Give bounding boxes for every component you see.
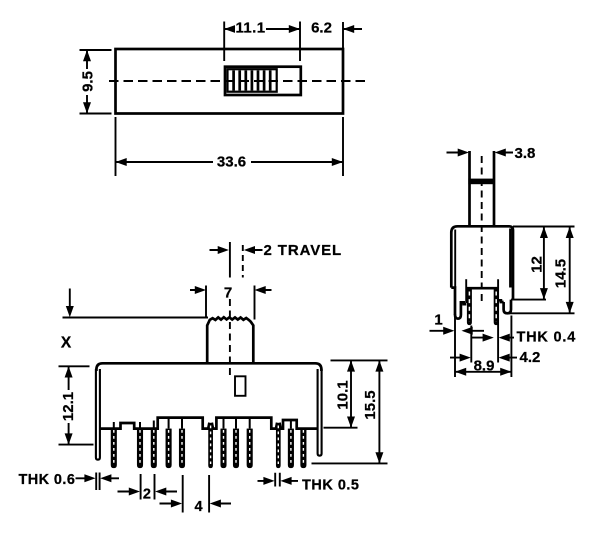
svg-text:2: 2: [143, 487, 151, 503]
svg-text:4: 4: [194, 499, 202, 515]
svg-text:4.2: 4.2: [520, 349, 541, 366]
svg-text:12.1: 12.1: [60, 392, 77, 421]
svg-text:2 TRAVEL: 2 TRAVEL: [264, 242, 343, 259]
svg-text:X: X: [61, 335, 72, 352]
svg-text:33.6: 33.6: [217, 154, 246, 171]
svg-text:9.5: 9.5: [80, 71, 97, 92]
svg-text:8.9: 8.9: [474, 358, 495, 375]
svg-text:6.2: 6.2: [311, 20, 332, 37]
svg-text:1: 1: [434, 312, 442, 329]
svg-text:11.1: 11.1: [236, 20, 266, 37]
svg-text:THK 0.6: THK 0.6: [19, 472, 76, 488]
svg-text:THK 0.5: THK 0.5: [302, 478, 360, 494]
svg-text:3.8: 3.8: [515, 145, 536, 162]
svg-text:THK 0.4: THK 0.4: [517, 330, 577, 346]
svg-text:12: 12: [529, 256, 546, 273]
svg-text:15.5: 15.5: [362, 390, 379, 419]
svg-text:7: 7: [224, 285, 232, 302]
svg-text:10.1: 10.1: [335, 380, 352, 409]
svg-text:14.5: 14.5: [553, 259, 570, 288]
